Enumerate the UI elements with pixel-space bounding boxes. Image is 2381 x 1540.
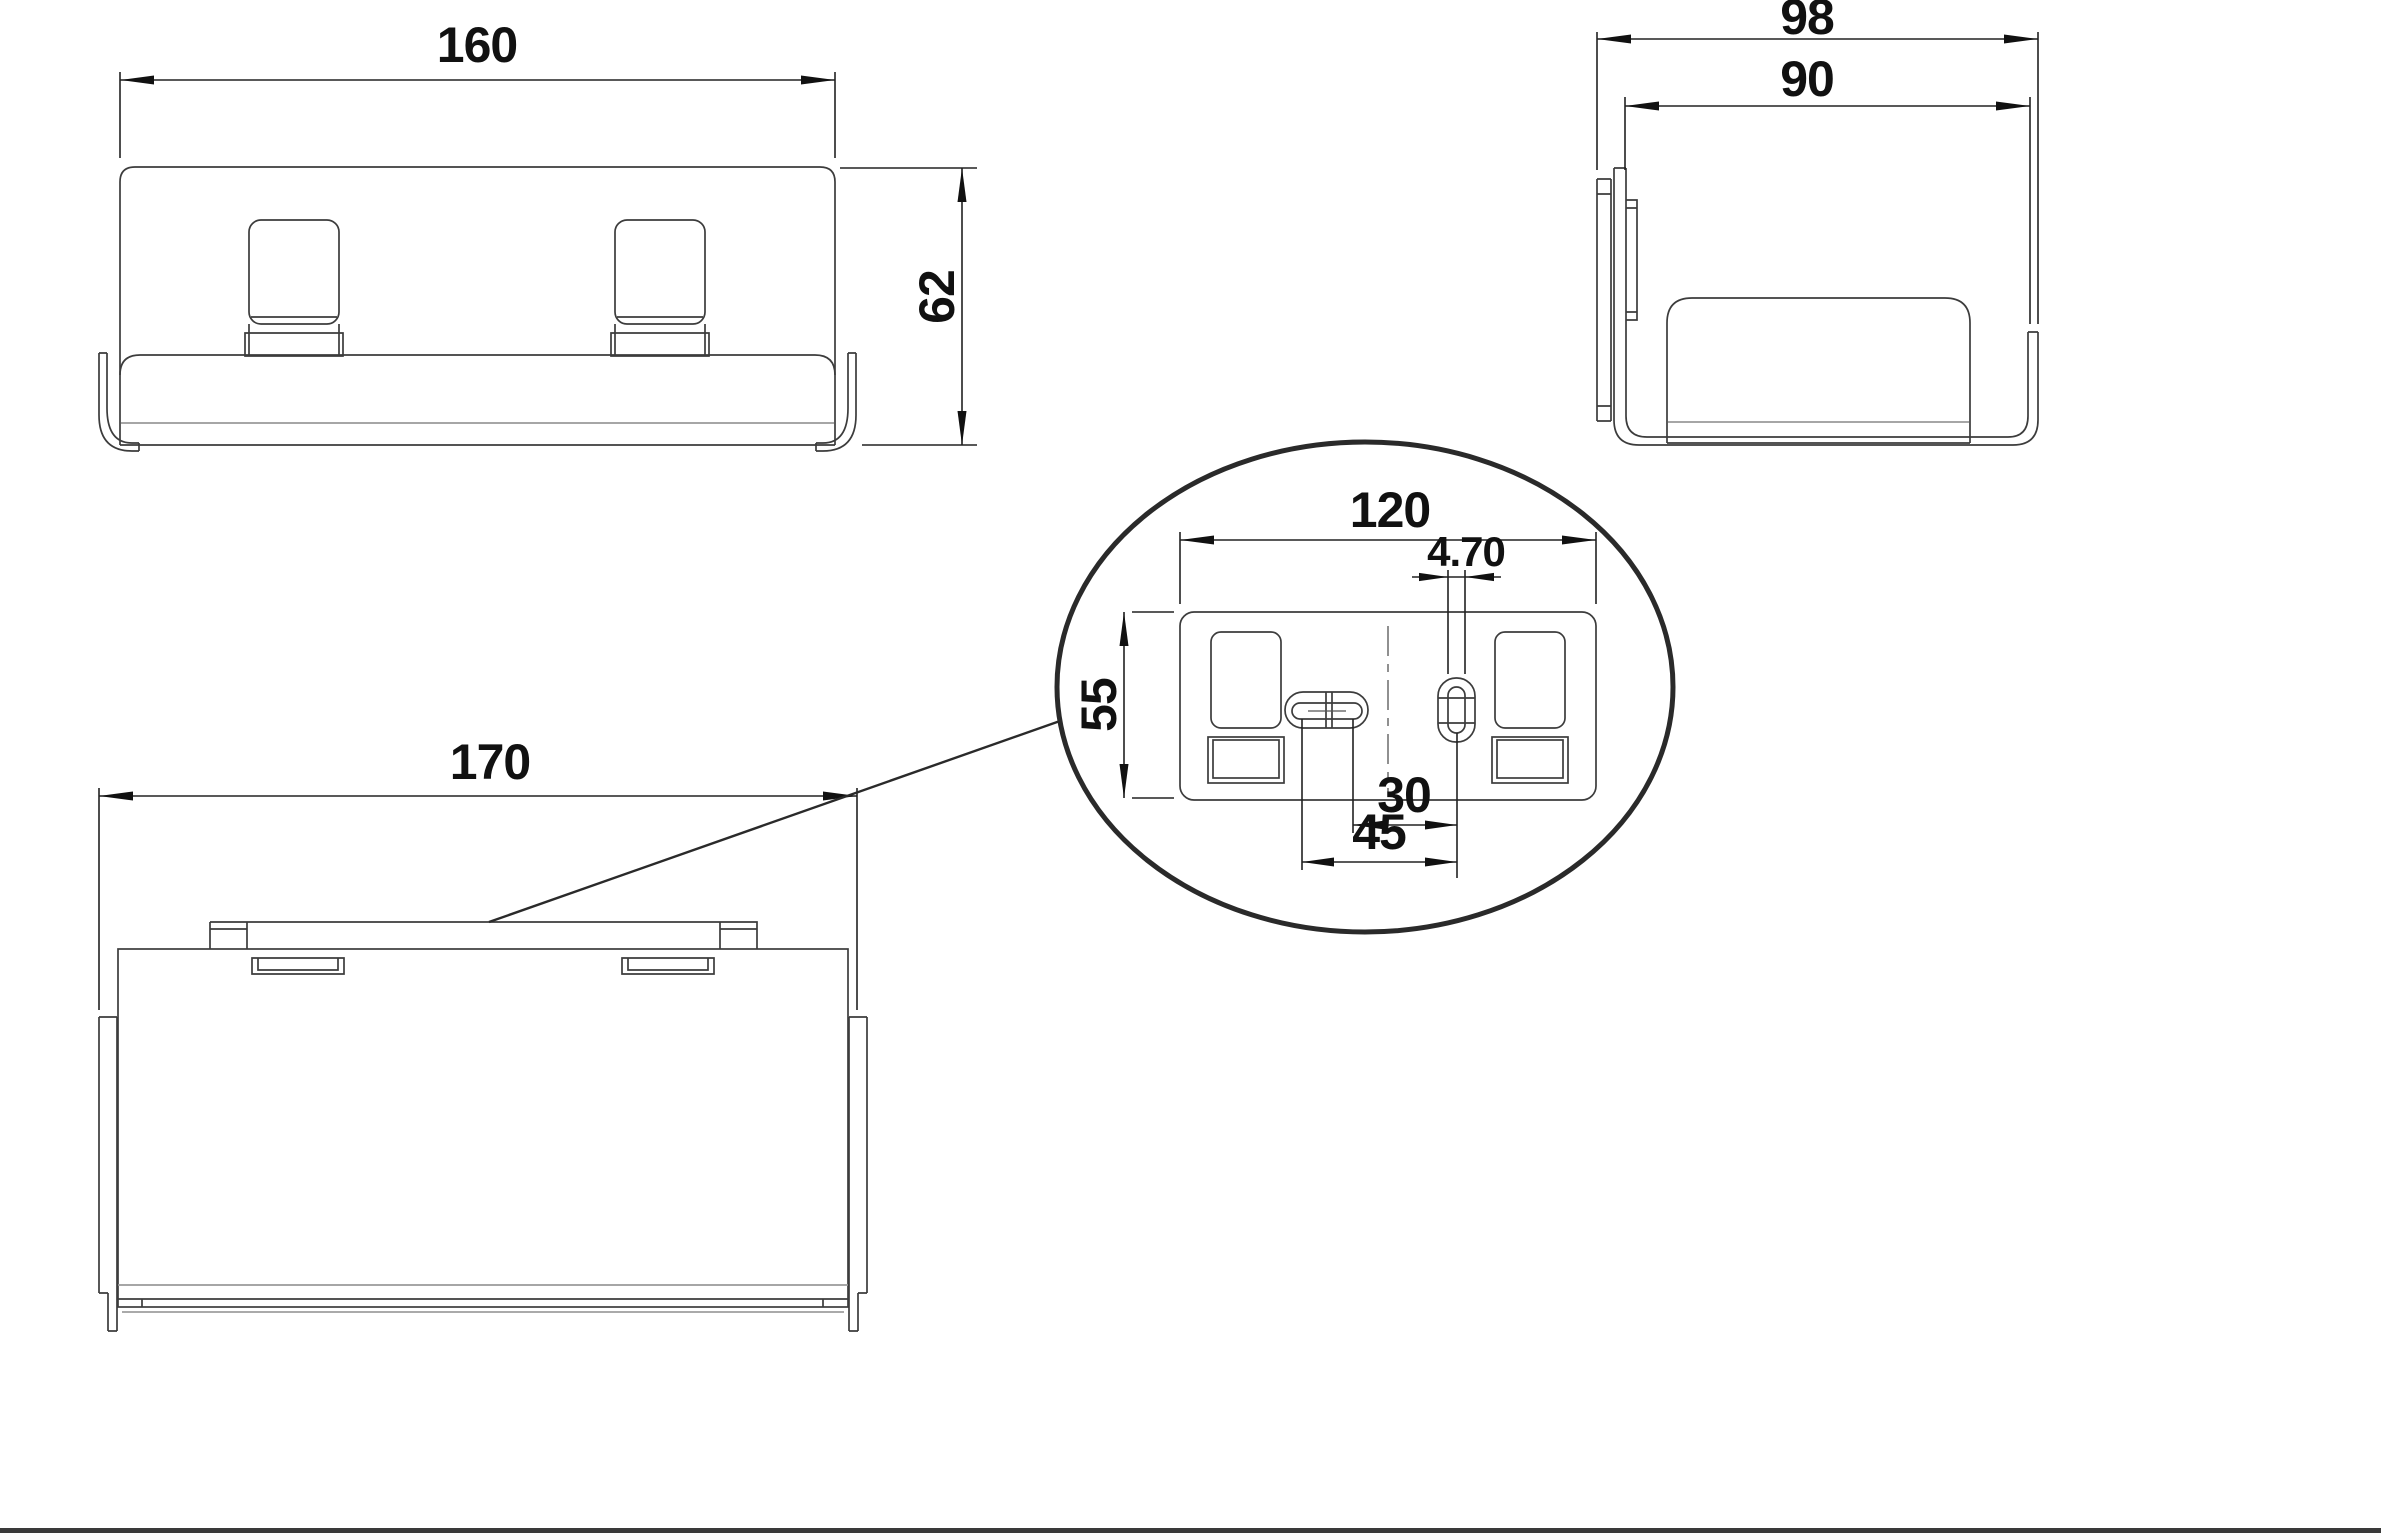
detail-right-foot [1492,737,1568,783]
front-right-tab [615,220,705,324]
front-left-hook [99,353,139,451]
dim-detail-plate-width-text: 120 [1350,482,1430,538]
front-right-tab-foot [611,324,709,356]
sheet-border-line [0,1528,2381,1533]
technical-drawing-canvas: 160 62 98 90 [0,0,2381,1540]
dim-side-depth-text: 98 [1780,0,1834,45]
front-tray [120,355,835,375]
dim-detail-plate-height-text: 55 [1071,678,1127,732]
leader-line [489,721,1060,922]
arrowhead-up [958,168,967,202]
top-view [99,922,867,1331]
dim-top-width [99,788,857,1010]
arrowhead-right [801,76,835,85]
arrowhead-right [2004,35,2038,44]
detail-left-tab [1211,632,1281,728]
side-wall-main-strip [1614,168,1647,445]
arrowhead-down [1120,764,1129,798]
front-left-tab [249,220,339,324]
front-left-tab-foot [245,324,343,356]
arrowhead-up [1120,612,1129,646]
top-right-hook-strip [849,1017,867,1331]
arrowhead-left [1180,536,1214,545]
detail-right-tab [1495,632,1565,728]
dim-front-width [120,72,835,158]
dim-top-width-text: 170 [450,734,530,790]
side-lip [2008,332,2038,445]
arrowhead-left [99,792,133,801]
detail-left-foot [1208,737,1284,783]
top-right-tab-notch [622,958,714,974]
top-body [118,949,848,1307]
arrowhead-right [1562,536,1596,545]
dim-detail-slot-spacing-text: 45 [1352,804,1406,860]
front-body-outline [120,167,835,445]
dim-detail-plate-height [1120,612,1175,798]
arrowhead-right [1996,102,2030,111]
arrowhead-left [1597,35,1631,44]
drawing-sheet: 160 62 98 90 [0,0,2381,1540]
top-left-tab-notch [252,958,344,974]
detail-keyhole-slot [1438,678,1475,742]
top-wall-plate [210,922,757,949]
top-front-lip-lines [118,1299,848,1307]
arrowhead-down [958,411,967,445]
top-left-hook-strip [99,1017,117,1331]
detail-horizontal-slot [1285,692,1368,728]
dim-detail-slot-width [1412,570,1501,674]
dim-detail-slot-width-text: 4.70 [1427,528,1505,575]
arrowhead-left [1302,858,1334,867]
side-view [1597,168,2038,445]
dim-side-opening-text: 90 [1780,51,1834,107]
dim-front-height-text: 62 [909,270,965,324]
arrowhead-right [1425,858,1457,867]
front-right-hook [816,353,856,451]
arrowhead-left [1625,102,1659,111]
side-wall-outer-strip [1597,179,1611,421]
dim-side-opening [1625,97,2030,324]
side-tab-profile [1626,200,1637,320]
front-view [99,167,856,451]
dim-detail-plate-width [1180,532,1596,604]
dim-front-width-text: 160 [437,17,517,73]
arrowhead-left [120,76,154,85]
